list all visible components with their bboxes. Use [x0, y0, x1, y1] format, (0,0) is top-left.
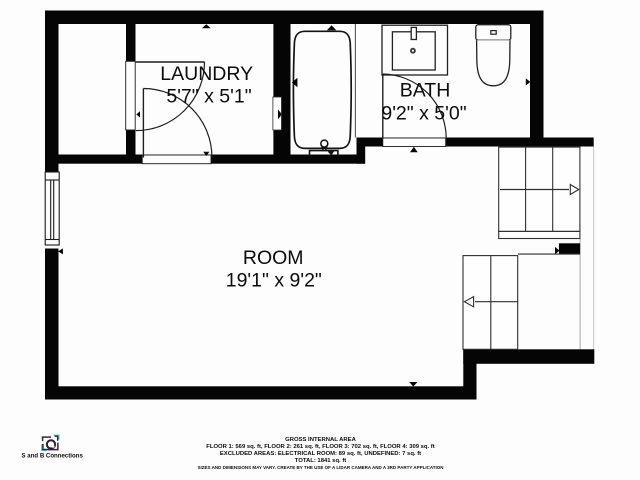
svg-text:BATH: BATH: [400, 80, 451, 102]
svg-text:9'2" x 5'0": 9'2" x 5'0": [381, 103, 466, 125]
svg-text:19'1" x 9'2": 19'1" x 9'2": [226, 270, 322, 292]
svg-text:LAUNDRY: LAUNDRY: [160, 63, 253, 85]
svg-text:SIZES AND DIMENSIONS MAY VARY.: SIZES AND DIMENSIONS MAY VARY. CREATE BY…: [197, 465, 443, 470]
svg-text:FLOOR 1: 569 sq. ft, FLOOR 2:: FLOOR 1: 569 sq. ft, FLOOR 2: 261 sq. ft…: [206, 444, 435, 450]
svg-text:TOTAL: 1841 sq. ft: TOTAL: 1841 sq. ft: [295, 458, 347, 464]
svg-text:5'7" x 5'1": 5'7" x 5'1": [166, 86, 251, 108]
svg-text:EXCLUDED AREAS: ELECTRICAL ROO: EXCLUDED AREAS: ELECTRICAL ROOM: 89 sq. …: [220, 451, 421, 457]
svg-text:GROSS INTERNAL AREA: GROSS INTERNAL AREA: [285, 437, 356, 443]
svg-text:ROOM: ROOM: [243, 247, 304, 269]
svg-text:S and B Connections: S and B Connections: [22, 452, 84, 459]
